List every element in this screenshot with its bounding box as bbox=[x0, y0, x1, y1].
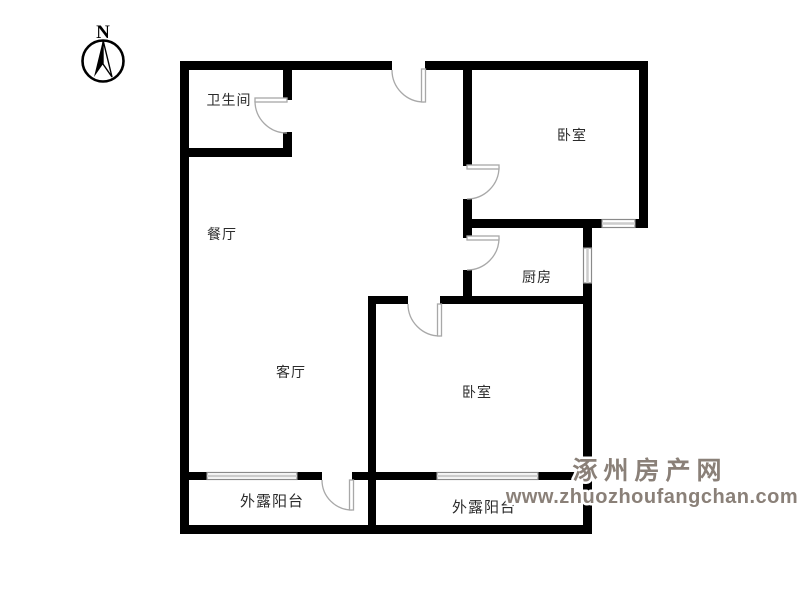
floorplan-drawing: N 卫生间 餐厅 卧室 厨房 客厅 卧室 外露阳台 外露阳台 涿州房产网 www… bbox=[0, 0, 800, 600]
wall-segment bbox=[368, 296, 376, 534]
wall-segment bbox=[425, 61, 648, 70]
room-label-dining-room: 餐厅 bbox=[207, 226, 237, 242]
room-label-kitchen: 厨房 bbox=[522, 269, 552, 285]
wall-segment bbox=[180, 525, 592, 534]
wall-segment bbox=[297, 472, 322, 480]
wall-segment bbox=[180, 472, 207, 480]
door-entry bbox=[392, 69, 426, 102]
wall-segment bbox=[180, 61, 189, 534]
door-balcony bbox=[322, 480, 354, 510]
watermark-site-url: www.zhuozhoufangchan.com bbox=[505, 486, 798, 508]
wall-segment bbox=[440, 296, 592, 304]
room-label-balcony-left: 外露阳台 bbox=[240, 493, 304, 510]
wall-segment bbox=[639, 61, 648, 228]
room-label-bathroom: 卫生间 bbox=[207, 92, 252, 108]
watermark-site-name: 涿州房产网 bbox=[572, 456, 727, 485]
door-bedroom2 bbox=[408, 304, 442, 336]
window-symbol-balcony-left bbox=[207, 473, 297, 480]
door-bedroom1 bbox=[467, 165, 499, 199]
watermark: 涿州房产网 www.zhuozhoufangchan.com bbox=[505, 456, 798, 508]
door-bathroom bbox=[255, 98, 287, 133]
room-label-bedroom-2: 卧室 bbox=[462, 384, 492, 400]
wall-segment bbox=[283, 61, 292, 100]
wall-segment bbox=[283, 132, 292, 157]
wall-segment bbox=[463, 199, 472, 238]
window-symbol-bedroom1 bbox=[602, 220, 635, 228]
door-kitchen bbox=[467, 236, 499, 270]
room-label-bedroom-1: 卧室 bbox=[557, 127, 587, 143]
window-symbol-kitchen bbox=[584, 248, 592, 283]
wall-segment bbox=[635, 219, 648, 228]
windows bbox=[207, 220, 635, 480]
north-arrow-icon: N bbox=[83, 22, 124, 82]
room-label-living-room: 客厅 bbox=[276, 364, 306, 380]
window-symbol-balcony-right bbox=[437, 473, 538, 480]
wall-segment bbox=[463, 61, 472, 166]
floorplan-canvas: N 卫生间 餐厅 卧室 厨房 客厅 卧室 外露阳台 外露阳台 涿州房产网 www… bbox=[0, 0, 800, 600]
wall-segment bbox=[180, 148, 292, 157]
wall-segment bbox=[368, 472, 437, 480]
wall-segment bbox=[583, 219, 592, 248]
wall-segment bbox=[463, 219, 602, 228]
